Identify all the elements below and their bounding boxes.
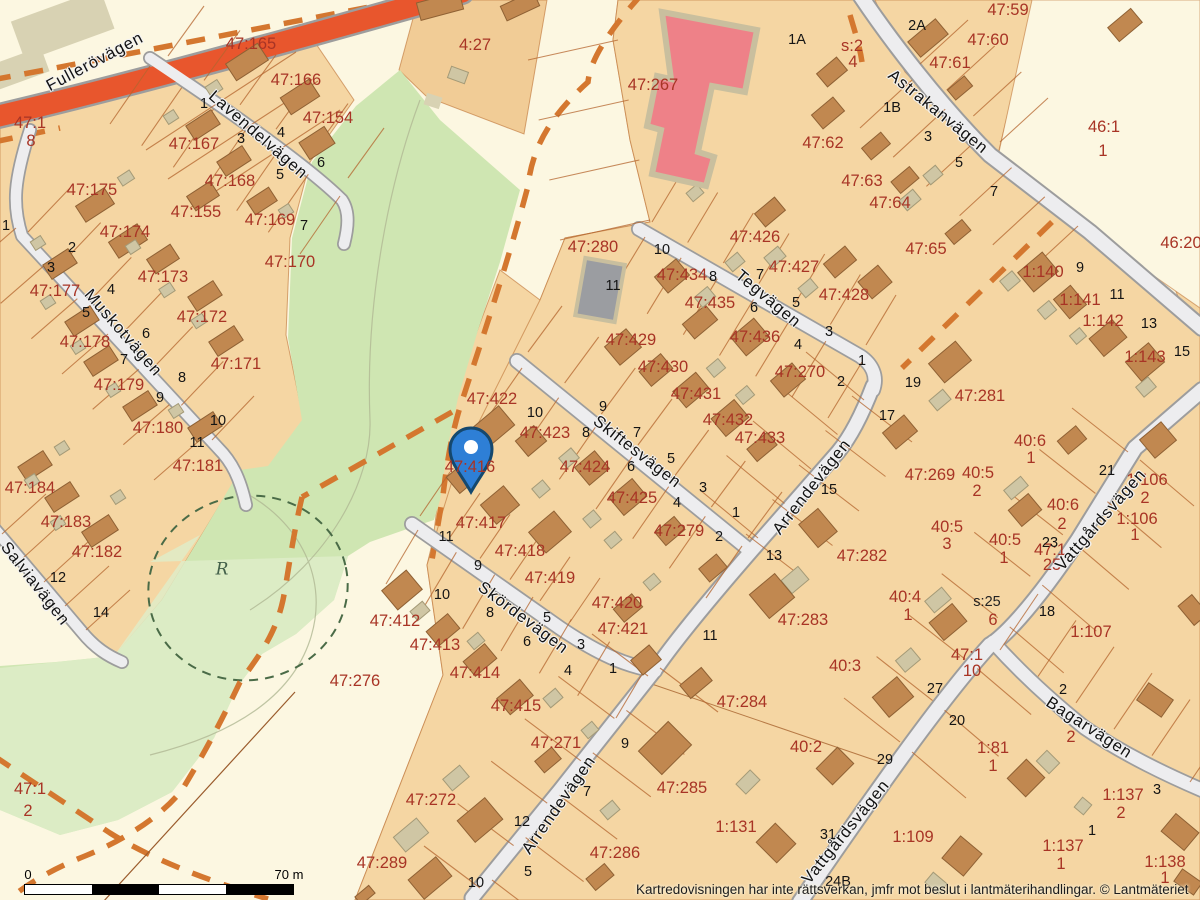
map-canvas[interactable]: 47:16547:16647:15447:16747:17547:16847:1…	[0, 0, 1200, 900]
scale-bar	[24, 884, 294, 895]
scale-start: 0	[24, 867, 31, 882]
building	[575, 258, 624, 322]
accessory-building	[410, 601, 430, 620]
map-terrain	[0, 0, 1200, 900]
scale-end: 70 m	[275, 867, 304, 882]
attribution-text: Kartredovisningen har inte rättsverkan, …	[636, 882, 1188, 897]
building	[382, 570, 423, 610]
